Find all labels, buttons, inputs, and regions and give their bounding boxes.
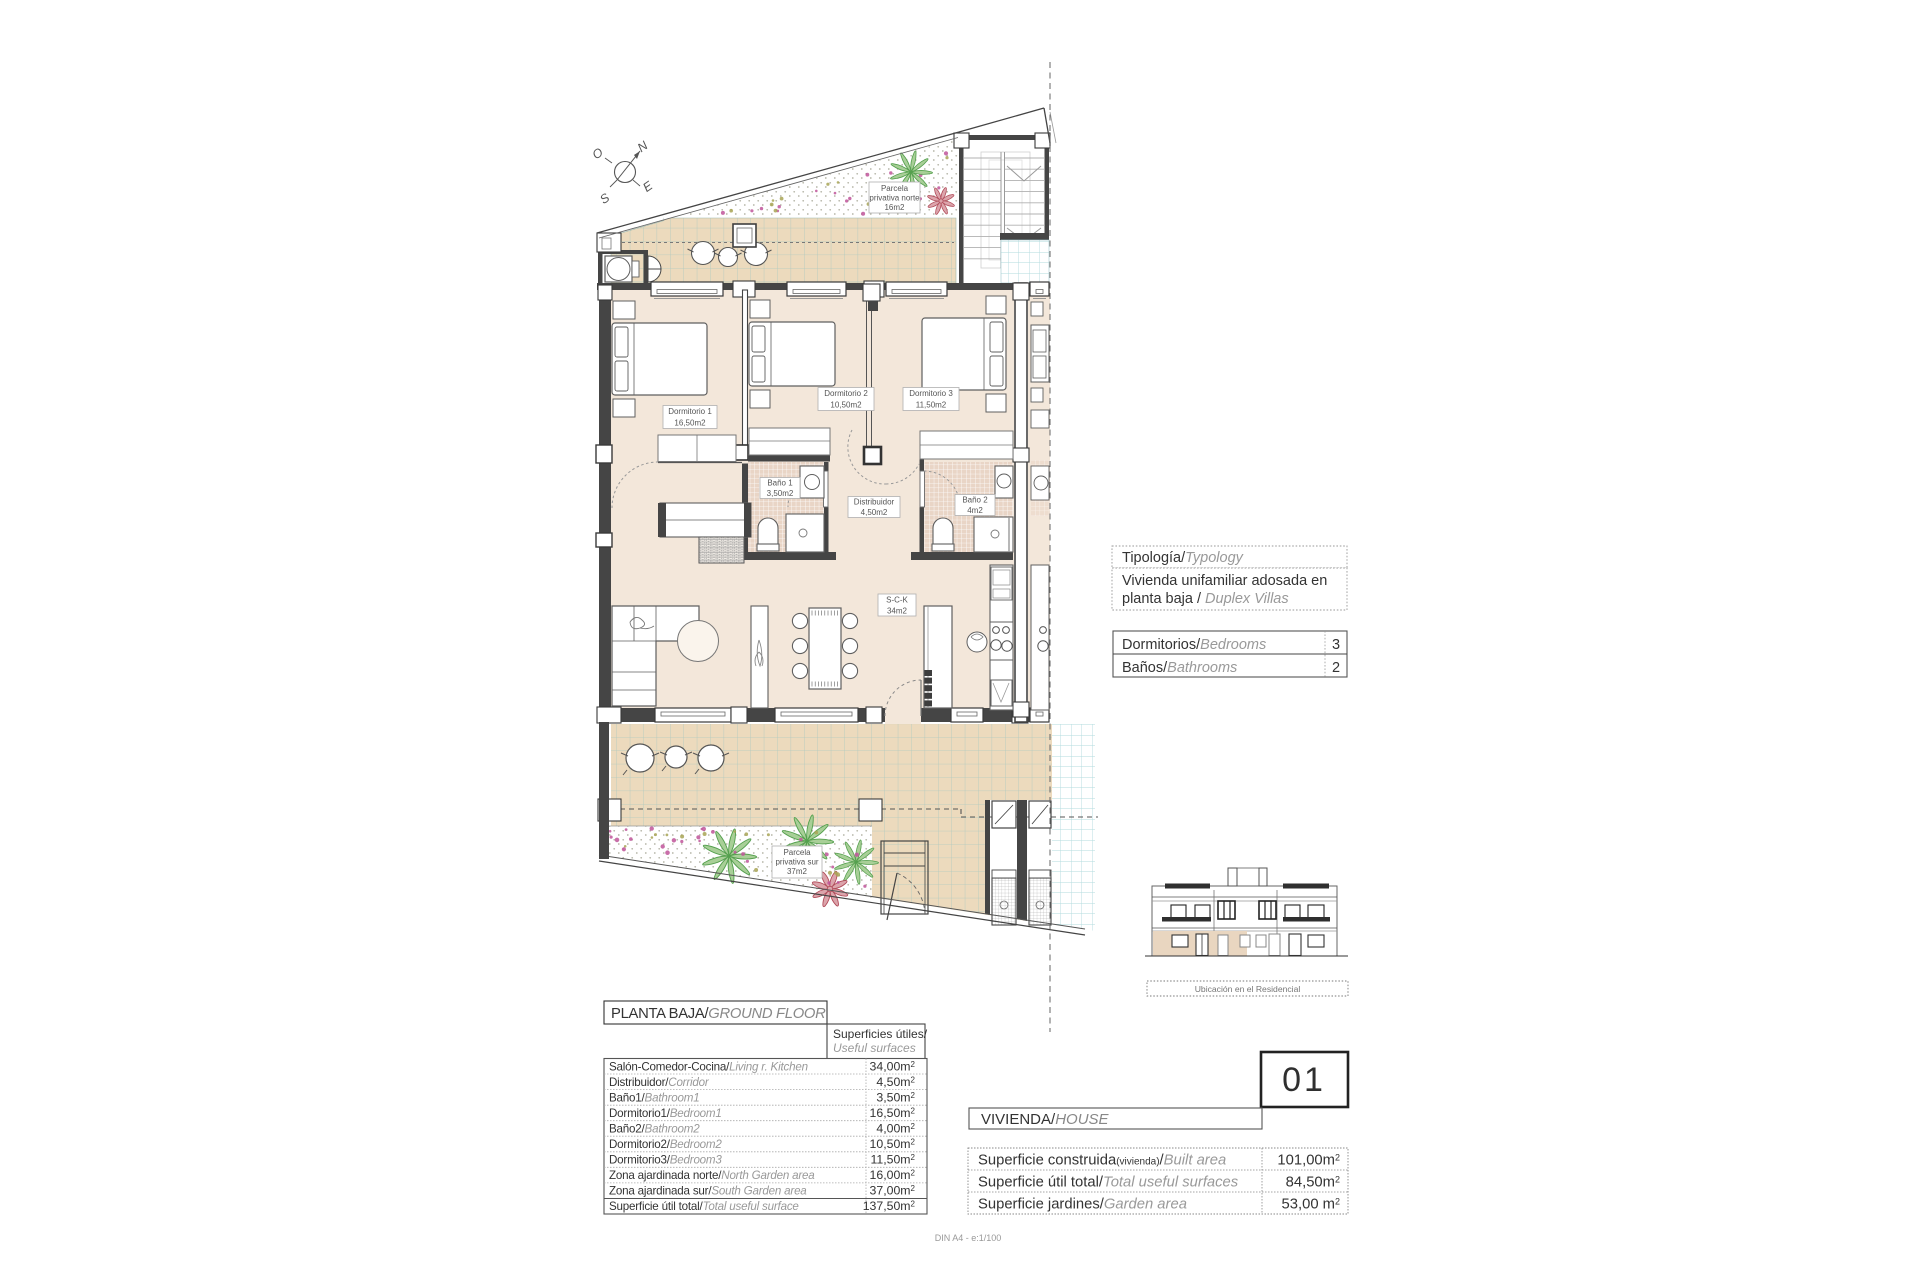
svg-text:Dormitorio 3: Dormitorio 3 <box>909 389 953 398</box>
svg-text:VIVIENDA/HOUSE: VIVIENDA/HOUSE <box>981 1111 1110 1128</box>
svg-text:Zona ajardinada norte/North Ga: Zona ajardinada norte/North Garden area <box>609 1169 815 1182</box>
svg-text:3,50m2: 3,50m2 <box>876 1090 915 1104</box>
svg-text:16,00m2: 16,00m2 <box>870 1168 916 1182</box>
svg-text:34m2: 34m2 <box>887 606 908 615</box>
svg-text:N: N <box>635 138 651 155</box>
svg-text:Parcela: Parcela <box>783 848 811 857</box>
svg-text:DIN A4 - e:1/100: DIN A4 - e:1/100 <box>935 1233 1002 1243</box>
svg-text:16,50m2: 16,50m2 <box>674 419 706 428</box>
svg-text:Baño1/Bathroom1: Baño1/Bathroom1 <box>609 1091 699 1104</box>
svg-text:Salón-Comedor-Cocina/Living r.: Salón-Comedor-Cocina/Living r. Kitchen <box>609 1060 808 1073</box>
svg-text:Vivienda unifamiliar adosada e: Vivienda unifamiliar adosada en <box>1122 573 1327 589</box>
svg-text:10,50m2: 10,50m2 <box>870 1137 916 1151</box>
svg-text:Dormitorio2/Bedroom2: Dormitorio2/Bedroom2 <box>609 1138 722 1151</box>
svg-text:planta baja / Duplex Villas: planta baja / Duplex Villas <box>1122 591 1289 607</box>
svg-text:Baño 2: Baño 2 <box>962 496 988 505</box>
svg-text:Superficie construida(vivienda: Superficie construida(vivienda)/Built ar… <box>978 1153 1226 1169</box>
svg-text:Baño2/Bathroom2: Baño2/Bathroom2 <box>609 1123 700 1136</box>
svg-text:Parcela: Parcela <box>881 184 909 193</box>
svg-text:37,00m2: 37,00m2 <box>870 1184 916 1198</box>
svg-text:16,50m2: 16,50m2 <box>870 1106 916 1120</box>
svg-text:privativa norte: privativa norte <box>869 194 920 203</box>
svg-text:Ubicación en el Residencial: Ubicación en el Residencial <box>1195 984 1301 994</box>
svg-text:privativa sur: privativa sur <box>775 858 818 867</box>
svg-text:137,50m2: 137,50m2 <box>863 1199 916 1213</box>
svg-text:Dormitorio 1: Dormitorio 1 <box>668 407 712 416</box>
svg-text:Dormitorio 2: Dormitorio 2 <box>824 389 868 398</box>
svg-text:Zona ajardinada sur/South Gard: Zona ajardinada sur/South Garden area <box>609 1185 807 1198</box>
svg-text:O: O <box>590 145 606 162</box>
svg-text:3,50m2: 3,50m2 <box>767 489 794 498</box>
svg-text:2: 2 <box>1332 660 1340 676</box>
svg-text:Baños/Bathrooms: Baños/Bathrooms <box>1122 660 1237 676</box>
svg-text:4,50m2: 4,50m2 <box>876 1075 915 1089</box>
svg-text:4,50m2: 4,50m2 <box>861 508 888 517</box>
svg-text:Baño 1: Baño 1 <box>767 479 793 488</box>
svg-text:53,00 m2: 53,00 m2 <box>1282 1197 1340 1213</box>
svg-text:4,00m2: 4,00m2 <box>876 1122 915 1136</box>
svg-text:11,50m2: 11,50m2 <box>870 1153 915 1167</box>
svg-text:PLANTA BAJA/GROUND FLOOR: PLANTA BAJA/GROUND FLOOR <box>611 1006 826 1022</box>
svg-text:11,50m2: 11,50m2 <box>916 401 947 410</box>
svg-text:10,50m2: 10,50m2 <box>830 401 862 410</box>
svg-text:Distribuidor/Corridor: Distribuidor/Corridor <box>609 1076 710 1089</box>
svg-text:Superficie jardines/Garden are: Superficie jardines/Garden area <box>978 1197 1187 1213</box>
svg-text:Distribuidor: Distribuidor <box>854 498 895 507</box>
svg-text:3: 3 <box>1332 637 1340 653</box>
svg-text:S: S <box>597 190 612 207</box>
svg-text:84,50m2: 84,50m2 <box>1286 1175 1340 1191</box>
svg-text:S-C-K: S-C-K <box>886 595 908 604</box>
svg-text:4m2: 4m2 <box>967 506 983 515</box>
svg-text:Dormitorio1/Bedroom1: Dormitorio1/Bedroom1 <box>609 1107 722 1120</box>
svg-text:01: 01 <box>1282 1061 1326 1099</box>
svg-text:37m2: 37m2 <box>787 867 808 876</box>
svg-text:34,00m2: 34,00m2 <box>870 1059 916 1073</box>
svg-text:16m2: 16m2 <box>884 203 905 212</box>
svg-text:E: E <box>640 178 655 195</box>
svg-text:Dormitorio3/Bedroom3: Dormitorio3/Bedroom3 <box>609 1154 722 1167</box>
svg-text:Dormitorios/Bedrooms: Dormitorios/Bedrooms <box>1122 637 1266 653</box>
svg-text:Superficie útil total/Total us: Superficie útil total/Total useful surfa… <box>978 1175 1239 1191</box>
svg-text:Superficie útil total/Total us: Superficie útil total/Total useful surfa… <box>609 1200 799 1213</box>
svg-text:Superficies útiles/: Superficies útiles/ <box>833 1027 928 1041</box>
svg-text:Tipología/Typology: Tipología/Typology <box>1122 550 1244 566</box>
svg-text:Useful surfaces: Useful surfaces <box>833 1041 916 1055</box>
svg-text:101,00m2: 101,00m2 <box>1277 1153 1340 1169</box>
